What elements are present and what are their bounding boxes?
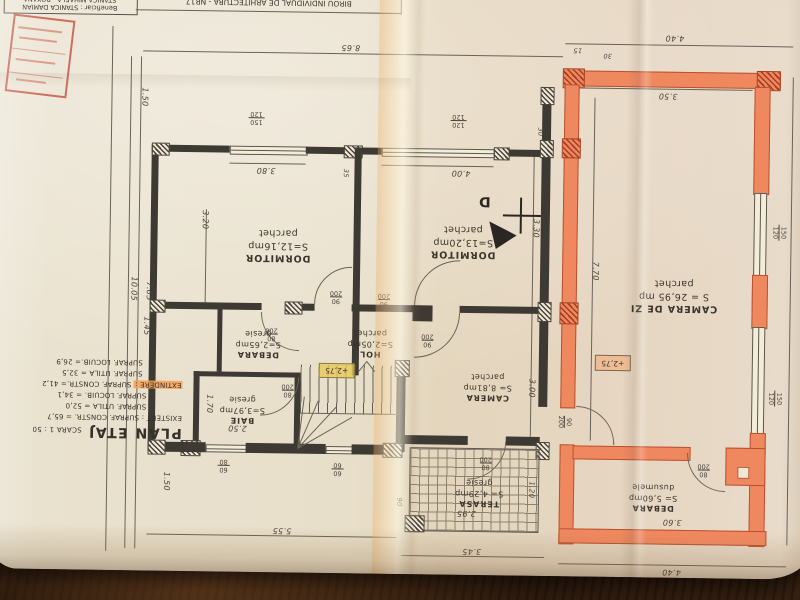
legend-extindere-locuib: SUPRAF. LOCUIB.= 26,9: [13, 355, 183, 368]
room-name: DEBARA: [224, 348, 292, 359]
window: [382, 148, 496, 159]
drawing-sheet: Beneficiar : STANICA DAMIAN STANICA MIHA…: [0, 0, 800, 580]
dim-text: 3.00: [527, 379, 536, 398]
window: [753, 193, 767, 277]
door-mark: 90 200: [378, 292, 391, 307]
room-finish: parchet: [231, 226, 326, 240]
room-label-camera: CAMERA S= 8,81mp parchet: [451, 371, 523, 403]
door-height: 200: [378, 292, 391, 299]
wall: [506, 436, 540, 445]
window-width: 150: [778, 225, 786, 242]
window-height: 80: [217, 457, 229, 464]
room-finish: parchet: [344, 327, 396, 338]
approval-stamp: [5, 14, 76, 99]
room-area: S= 4,29mp: [443, 487, 515, 498]
window: [230, 146, 308, 156]
stair-landing-line: [300, 413, 398, 415]
door-mark: 90 200: [421, 332, 434, 347]
dim-text: 3.50: [659, 92, 678, 101]
extension-wall-hatch: [559, 302, 578, 324]
window-width: 120: [450, 120, 467, 128]
room-name: DORMITOR: [415, 247, 510, 261]
beneficiary-text: Beneficiar : STANICA DAMIAN STANICA MIHA…: [6, 0, 134, 12]
door-height: 200: [281, 382, 294, 389]
sheet-frame-line: [105, 26, 113, 551]
room-name: DEBARA: [615, 502, 691, 513]
dim-text: 35: [342, 169, 350, 178]
door-width: 90: [421, 339, 434, 347]
door-mark: 90 200: [556, 416, 571, 429]
dim-line: [230, 163, 306, 165]
window-mark: 150 120: [771, 225, 787, 242]
dim-text: 10.05: [129, 277, 138, 302]
door-height: 200: [479, 455, 492, 462]
dim-line: [558, 563, 786, 567]
dim-line: [565, 43, 793, 47]
room-label-hol: HOL S=2,05mp parchet: [344, 327, 396, 359]
dim-text: 90: [395, 498, 403, 507]
stamp-text-line: [16, 78, 46, 84]
extension-wall: [558, 528, 766, 546]
wall-hatch: [382, 443, 402, 458]
wall: [150, 301, 262, 310]
room-name: TERASA: [443, 497, 515, 508]
door-mark: 80 200: [479, 455, 492, 470]
window-mark: 150 120: [767, 391, 783, 408]
dim-text: 3.80: [256, 166, 275, 175]
window: [751, 327, 766, 435]
door-height: 200: [697, 462, 710, 469]
extindere-constr-value: SUPRAF. CONSTR.= 41,2: [42, 379, 134, 388]
dim-line: [134, 56, 142, 548]
room-label-baie: BAIE S=3,97mp gresie: [211, 393, 273, 425]
room-name: CAMERA DE ZI: [622, 301, 726, 315]
door-height: 200: [330, 289, 343, 296]
dim-text: 3.30: [532, 219, 541, 238]
dim-text: 1.50: [140, 87, 149, 106]
room-area: S=13,20mp: [415, 235, 510, 249]
wall-hatch: [540, 87, 554, 105]
level-marker-hol: +2,75: [319, 363, 355, 379]
dim-text: 1.45: [142, 316, 151, 335]
dim-text: 4.00: [451, 169, 470, 178]
header-divider: [401, 0, 402, 15]
legend-extindere-constr: EXTINDERE : SUPRAF. CONSTR.= 41,2: [12, 377, 182, 390]
room-area: S= 5,60mp: [615, 491, 691, 502]
door-height: 200: [421, 332, 434, 339]
dim-line: [786, 77, 794, 545]
wall: [362, 147, 382, 154]
room-label-debara-2: DEBARA S= 5,60mp dusumele: [615, 481, 691, 513]
dim-text: 4.40: [665, 34, 684, 43]
door-arc: [415, 260, 461, 306]
window-height: 120: [450, 113, 467, 120]
plan-title: PLAN ETAJ: [88, 424, 182, 441]
extindere-highlight: EXTINDERE :: [134, 380, 183, 389]
door-mark: 90 200: [330, 289, 343, 304]
room-area: S= 8,81mp: [451, 381, 523, 392]
flue-opening: [737, 467, 749, 479]
dim-text: 5.55: [272, 526, 291, 535]
dim-text: 1.50: [162, 472, 171, 491]
wall: [460, 306, 545, 314]
dim-text: 3.45: [462, 547, 481, 556]
room-area: S=12,16mp: [230, 238, 325, 252]
wall-hatch: [284, 301, 302, 314]
wall-hatch: [540, 140, 554, 158]
room-label-camera-de-zi: CAMERA DE ZI S = 26,95 mp parchet: [622, 276, 727, 314]
dim-text: 2.50: [228, 424, 247, 433]
stamp-text-line: [18, 26, 62, 33]
door-mark: 80 200: [265, 326, 278, 341]
room-name: HOL: [344, 348, 396, 359]
door-width: 80: [281, 389, 294, 397]
room-area: S=2,05mp: [344, 338, 396, 349]
room-area: S=3,97mp: [211, 404, 273, 415]
door-mark: 80 200: [697, 462, 710, 477]
plan-legend: PLAN ETAJSCARA 1 : 50 EXISTENT : SUPRAF.…: [12, 337, 183, 443]
door-height: 200: [556, 416, 563, 429]
door-mark: 80 200: [281, 382, 294, 397]
room-area: S=2,65mp: [224, 338, 292, 349]
room-finish: parchet: [416, 222, 511, 236]
section-marker-letter: D: [479, 193, 491, 209]
wall-hatch: [537, 302, 551, 322]
door-width: 90: [564, 416, 572, 429]
dim-text: 15: [573, 46, 582, 54]
wall-hatch: [152, 143, 170, 156]
dim-text: 7.05: [145, 281, 154, 300]
dim-text: 4.40: [662, 568, 681, 577]
window-width: 60: [331, 468, 343, 476]
window-height: 120: [767, 391, 774, 408]
room-label-debara-1: DEBARA S=2,65mp gresie: [224, 328, 292, 360]
room-finish: parchet: [622, 276, 726, 290]
photo-of-floor-plan: { "photo": {"description": "Architectura…: [0, 0, 800, 600]
window: [206, 444, 248, 453]
door-arc: [576, 406, 615, 445]
room-area: S = 26,95 mp: [622, 288, 726, 302]
window-width: 60: [217, 465, 229, 473]
dim-text: 30: [603, 52, 612, 60]
plan-title-row: PLAN ETAJSCARA 1 : 50: [12, 421, 182, 443]
room-label-dormitor-2: DORMITOR S=13,20mp parchet: [415, 222, 511, 260]
door-width: 80: [479, 462, 492, 470]
room-name: DORMITOR: [230, 250, 325, 264]
window-mark: 120 120: [450, 113, 467, 129]
wall: [246, 443, 326, 454]
window-height: 120: [248, 110, 265, 117]
wall: [194, 371, 301, 377]
dim-line: [382, 165, 494, 168]
plan-scale: SCARA 1 : 50: [32, 425, 82, 434]
extension-wall: [565, 70, 781, 89]
window-width: 150: [248, 117, 265, 125]
door-width: 80: [265, 333, 278, 341]
dim-text: 7.70: [591, 262, 600, 281]
wall-hatch: [404, 515, 424, 532]
wall: [217, 307, 223, 371]
dim-text: 2.95: [457, 509, 476, 518]
window-width: 150: [774, 391, 782, 408]
dim-text: 30: [536, 127, 544, 136]
room-label-dormitor-1: DORMITOR S=12,16mp parchet: [230, 226, 326, 264]
window-height: 60: [331, 461, 343, 468]
stamp-text-line: [15, 58, 55, 65]
dim-line: [124, 56, 132, 548]
extension-wall-hatch: [562, 138, 581, 158]
dim-text: 3.20: [201, 210, 210, 229]
window: [326, 446, 354, 454]
wall-hatch: [494, 147, 510, 160]
window-mark: 60 80: [217, 457, 229, 472]
extension-wall: [560, 84, 580, 408]
window-mark: 60 60: [331, 461, 343, 476]
dim-text: 1.70: [205, 394, 214, 413]
window-height: 120: [771, 225, 778, 242]
room-finish: dusumele: [615, 481, 691, 492]
header-rule: [136, 9, 402, 14]
window-mark: 150 120: [248, 110, 265, 126]
stamp-rule: [12, 48, 66, 55]
door-width: 80: [697, 469, 710, 477]
room-name: CAMERA: [451, 391, 523, 402]
door-height: 200: [265, 326, 278, 333]
wall: [193, 371, 200, 449]
floor-plan: Beneficiar : STANICA DAMIAN STANICA MIHA…: [0, 0, 800, 580]
door-width: 90: [330, 296, 343, 304]
wall: [403, 435, 468, 445]
extension-wall: [753, 87, 771, 195]
extension-wall: [751, 275, 768, 329]
dim-text: 8.65: [341, 43, 360, 52]
level-marker-living: +2,75: [595, 355, 631, 372]
dim-text: 1.20: [527, 481, 535, 498]
extension-wall: [572, 445, 690, 461]
door-width: 90: [378, 299, 391, 307]
architecture-office-text: BIROU INDIVIDUAL DE ARHITECTURA - NR17: [138, 0, 400, 9]
wall-hatch: [149, 299, 165, 312]
dim-line: [146, 533, 396, 537]
stamp-text-line: [19, 36, 57, 42]
room-label-terasa: TERASA S= 4,29mp gresie: [443, 477, 515, 509]
wall-pier: [412, 305, 432, 321]
dim-text: 3.60: [663, 518, 682, 527]
